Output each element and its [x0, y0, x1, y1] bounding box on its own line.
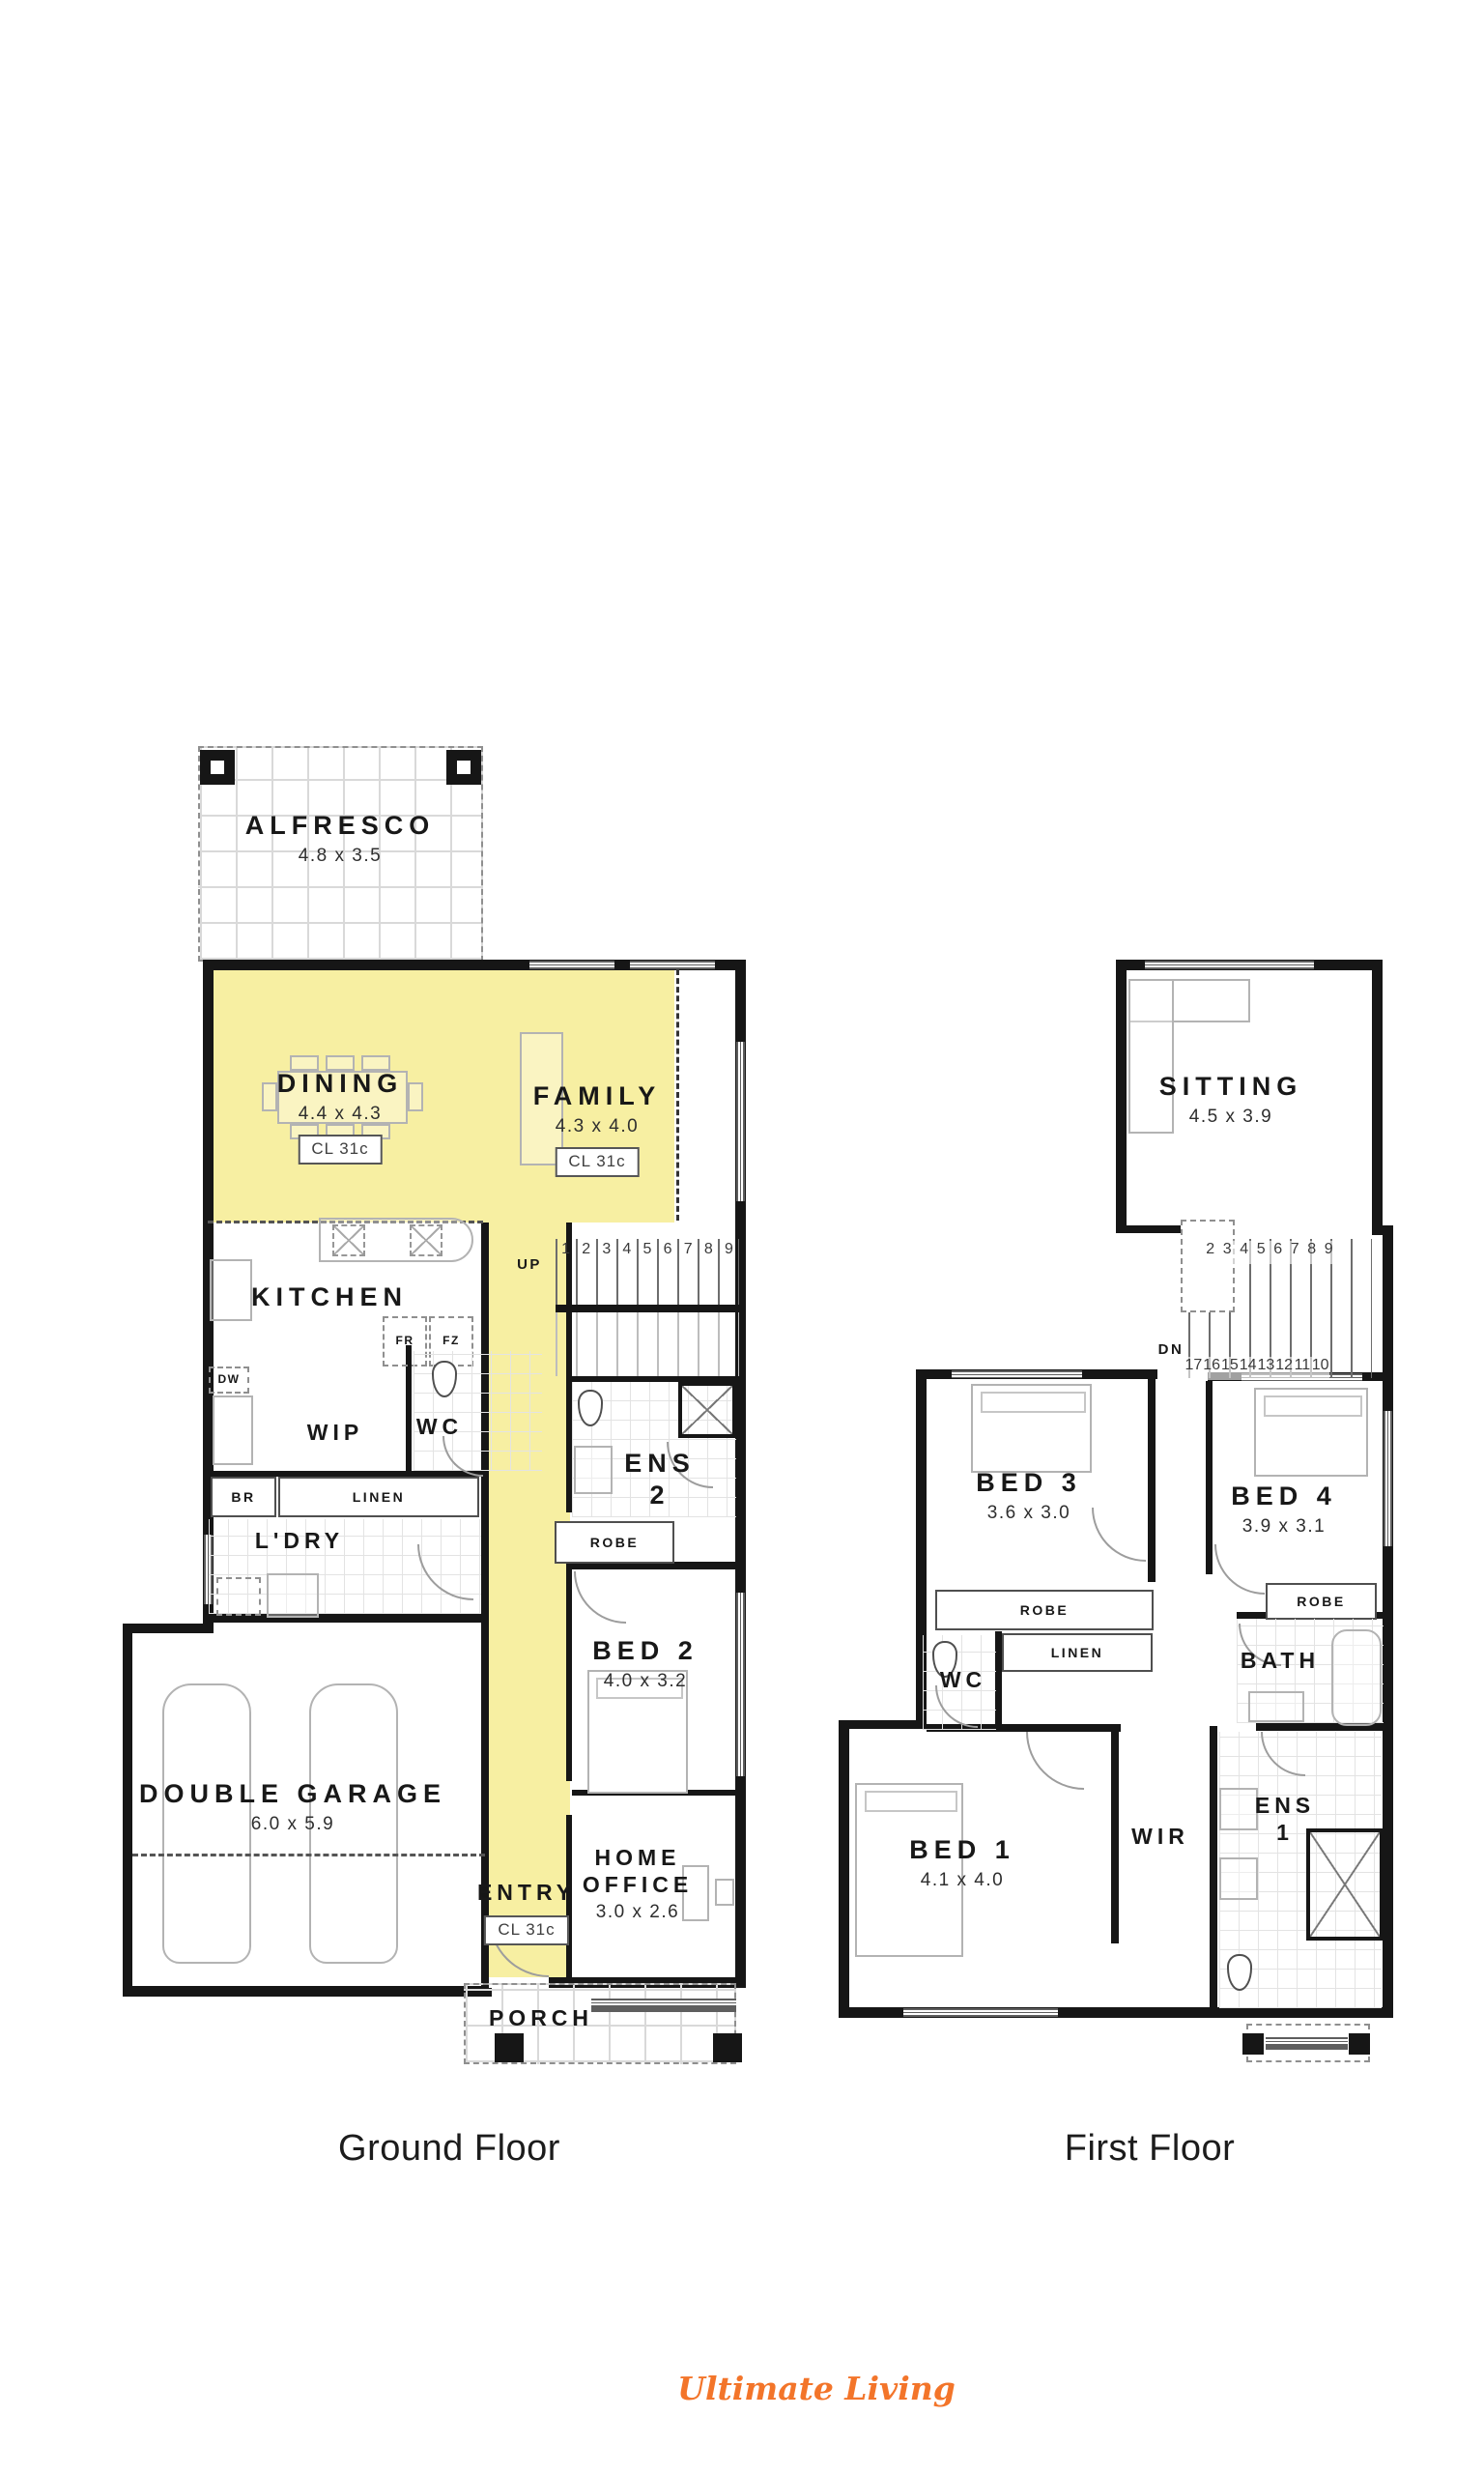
dishwasher-label: DW — [218, 1372, 241, 1386]
room-label-bed3: BED 3 3.6 x 3.0 — [976, 1467, 1082, 1524]
wall — [566, 1554, 572, 1781]
robe-cupboard-bed3: ROBE — [935, 1590, 1154, 1630]
office-name-line1: HOME — [583, 1844, 693, 1871]
room-label-family: FAMILY 4.3 x 4.0 CL 31c — [533, 1080, 662, 1177]
wall — [839, 1720, 849, 2018]
robe-label: ROBE — [1297, 1594, 1345, 1609]
cooktop — [210, 1259, 252, 1321]
sitting-name: SITTING — [1159, 1071, 1303, 1103]
post — [200, 750, 235, 785]
post — [1242, 2033, 1264, 2055]
room-label-bed4: BED 4 3.9 x 3.1 — [1231, 1481, 1337, 1538]
garage-setback-line — [132, 1854, 485, 1856]
wall — [481, 1223, 489, 1986]
bathtub — [1331, 1629, 1382, 1726]
office-dims: 3.0 x 2.6 — [583, 1901, 693, 1923]
ens1-name-line1: ENS — [1255, 1792, 1315, 1819]
stair-numbers-bottom: 1716151413121110 — [1184, 1357, 1329, 1380]
post — [1349, 2033, 1370, 2055]
office-name-line2: OFFICE — [583, 1871, 693, 1898]
entry-name: ENTRY — [477, 1879, 576, 1906]
broom-cupboard: BR — [211, 1477, 276, 1517]
room-label-bed2: BED 2 4.0 x 3.2 — [592, 1635, 699, 1692]
vanity — [1219, 1857, 1258, 1900]
wir-name: WIR — [1131, 1823, 1189, 1850]
shower — [678, 1382, 736, 1438]
kitchen-sink — [332, 1224, 365, 1256]
stairs-up-label: UP — [517, 1256, 542, 1273]
door-swing — [1026, 1732, 1084, 1790]
window — [736, 1593, 745, 1776]
stairs-down-label: DN — [1158, 1341, 1184, 1358]
wall — [1210, 1726, 1217, 2015]
linen-cupboard: LINEN — [1002, 1633, 1153, 1672]
linen-label: LINEN — [353, 1489, 406, 1505]
bed2-dims: 4.0 x 3.2 — [592, 1670, 699, 1692]
stairs-lower-flight — [556, 1312, 739, 1376]
ens2-name-line2: 2 — [624, 1480, 696, 1511]
wall — [1383, 1225, 1393, 2015]
ens2-name-line1: ENS — [624, 1448, 696, 1480]
alfresco-dims: 4.8 x 3.5 — [245, 845, 436, 867]
brand-logo: Ultimate Living — [677, 2370, 956, 2407]
wall — [123, 1986, 492, 1997]
stair-numbers: 123456789 — [556, 1241, 739, 1264]
room-label-ens2: ENS 2 — [624, 1448, 696, 1511]
window — [630, 961, 715, 969]
floorplan-canvas: ALFRESCO 4.8 x 3.5 DINING 4.4 x 4.3 CL 3… — [0, 0, 1484, 2474]
family-ceiling-tag: CL 31c — [555, 1147, 639, 1177]
window — [736, 1042, 745, 1201]
wall — [995, 1631, 1002, 1732]
garage-dims: 6.0 x 5.9 — [139, 1813, 446, 1835]
wall — [1206, 1381, 1213, 1574]
robe-label: ROBE — [1020, 1602, 1069, 1618]
garage-name: DOUBLE GARAGE — [139, 1778, 446, 1810]
bed2-name: BED 2 — [592, 1635, 699, 1667]
dining-chair — [408, 1082, 423, 1111]
bed4-bed — [1254, 1388, 1368, 1477]
family-nook-boundary — [676, 969, 679, 1221]
first-floor-caption: First Floor — [1065, 2128, 1236, 2170]
dining-dims: 4.4 x 4.3 — [277, 1103, 404, 1125]
bed3-bed — [971, 1384, 1092, 1473]
room-label-dining: DINING 4.4 x 4.3 CL 31c — [277, 1068, 404, 1165]
robe-cupboard-bed4: ROBE — [1266, 1583, 1377, 1620]
door-swing — [1214, 1544, 1265, 1595]
room-label-kitchen: KITCHEN — [251, 1281, 408, 1313]
stair-void — [1181, 1220, 1235, 1312]
room-label-sitting: SITTING 4.5 x 3.9 — [1159, 1071, 1303, 1128]
post — [713, 2033, 742, 2062]
wall — [1372, 960, 1383, 1235]
dining-ceiling-tag: CL 31c — [298, 1135, 382, 1165]
post — [446, 750, 481, 785]
kitchen-name: KITCHEN — [251, 1281, 408, 1313]
wall — [123, 1624, 214, 1633]
ground-floor-caption: Ground Floor — [338, 2128, 560, 2170]
stair-numbers-top: 23456789 — [1202, 1241, 1337, 1264]
room-label-home-office: HOME OFFICE 3.0 x 2.6 — [583, 1844, 693, 1923]
bed3-name: BED 3 — [976, 1467, 1082, 1499]
sitting-dims: 4.5 x 3.9 — [1159, 1106, 1303, 1128]
laundry-trough — [267, 1573, 319, 1618]
wall — [556, 1305, 739, 1312]
room-label-entry: ENTRY CL 31c — [477, 1879, 576, 1945]
post — [495, 2033, 524, 2062]
desk-chair — [715, 1879, 734, 1906]
vanity — [1248, 1691, 1304, 1722]
window — [1384, 1411, 1392, 1546]
fridge-label: FR — [396, 1334, 414, 1347]
wc-name: WC — [940, 1666, 986, 1693]
room-label-garage: DOUBLE GARAGE 6.0 x 5.9 — [139, 1778, 446, 1835]
shower — [1306, 1828, 1384, 1941]
window — [952, 1370, 1082, 1378]
wall — [123, 1624, 132, 1996]
bed1-name: BED 1 — [909, 1834, 1015, 1866]
room-label-bed1: BED 1 4.1 x 4.0 — [909, 1834, 1015, 1891]
vanity — [1219, 1788, 1258, 1830]
vanity — [574, 1446, 613, 1494]
family-dims: 4.3 x 4.0 — [533, 1115, 662, 1137]
broom-label: BR — [231, 1489, 255, 1505]
ldry-name: L'DRY — [255, 1527, 344, 1554]
porch-railing — [591, 1999, 736, 2012]
room-label-wir: WIR — [1131, 1823, 1189, 1850]
bed3-dims: 3.6 x 3.0 — [976, 1502, 1082, 1524]
entry-ceiling-tag: CL 31c — [484, 1915, 568, 1945]
dining-chair — [262, 1082, 277, 1111]
door-swing — [1092, 1508, 1146, 1562]
wip-name: WIP — [307, 1419, 363, 1446]
linen-label: LINEN — [1051, 1645, 1104, 1660]
room-label-wip: WIP — [307, 1419, 363, 1446]
wall — [1111, 1726, 1119, 1943]
room-label-alfresco: ALFRESCO 4.8 x 3.5 — [245, 810, 436, 867]
balcony-railing — [1266, 2037, 1348, 2050]
window — [529, 961, 614, 969]
robe-cupboard: ROBE — [555, 1521, 674, 1564]
bed4-name: BED 4 — [1231, 1481, 1337, 1512]
robe-label: ROBE — [590, 1535, 639, 1550]
dining-name: DINING — [277, 1068, 404, 1100]
room-label-wc-first: WC — [940, 1666, 986, 1693]
family-name: FAMILY — [533, 1080, 662, 1112]
freezer-label: FZ — [442, 1334, 460, 1347]
window — [1145, 961, 1314, 969]
room-label-porch: PORCH — [489, 2004, 593, 2031]
kitchen-sink — [410, 1224, 442, 1256]
room-label-ldry: L'DRY — [255, 1527, 344, 1554]
linen-cupboard: LINEN — [278, 1477, 479, 1517]
wall — [839, 1720, 927, 1729]
door-swing — [574, 1571, 626, 1624]
bed4-dims: 3.9 x 3.1 — [1231, 1515, 1337, 1538]
window — [903, 2008, 1058, 2017]
wall — [1148, 1379, 1156, 1582]
bath-name: BATH — [1241, 1647, 1320, 1674]
room-label-ens1: ENS 1 — [1255, 1792, 1315, 1846]
alfresco-name: ALFRESCO — [245, 810, 436, 842]
porch-name: PORCH — [489, 2004, 593, 2031]
washing-machine-recess — [216, 1577, 261, 1616]
bed1-dims: 4.1 x 4.0 — [909, 1869, 1015, 1891]
ens1-name-line2: 1 — [1255, 1819, 1315, 1846]
wall — [1116, 960, 1127, 1233]
room-label-bath: BATH — [1241, 1647, 1320, 1674]
pantry-sink — [213, 1395, 253, 1465]
